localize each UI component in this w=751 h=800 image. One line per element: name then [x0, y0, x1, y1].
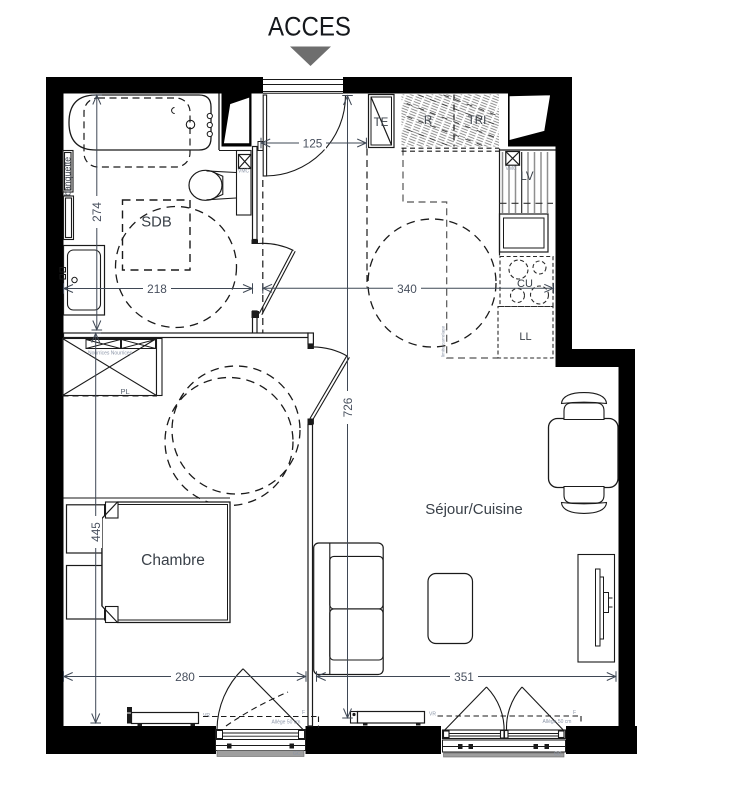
svg-text:LV: LV	[520, 171, 534, 183]
svg-text:125: 125	[303, 137, 323, 151]
svg-text:VMC: VMC	[238, 169, 250, 175]
svg-text:VR: VR	[429, 712, 436, 718]
svg-text:LL: LL	[519, 331, 531, 343]
svg-text:340: 340	[397, 282, 417, 296]
svg-text:TE: TE	[374, 117, 389, 129]
svg-text:SDB: SDB	[141, 215, 172, 231]
svg-text:PL: PL	[121, 387, 130, 396]
svg-text:GC: GC	[554, 752, 562, 758]
svg-text:limite carrelage: limite carrelage	[441, 325, 446, 357]
svg-text:Séjour/Cuisine: Séjour/Cuisine	[425, 501, 523, 518]
svg-text:Chambre: Chambre	[141, 552, 205, 569]
svg-text:banquette: banquette	[63, 157, 73, 196]
svg-text:Allège 50 cm: Allège 50 cm	[272, 720, 301, 726]
svg-text:280: 280	[175, 670, 195, 684]
svg-text:F: F	[573, 710, 576, 716]
svg-text:445: 445	[89, 522, 103, 542]
svg-text:F: F	[302, 710, 305, 716]
svg-text:GC: GC	[293, 751, 301, 757]
svg-text:Allège 50 cm: Allège 50 cm	[543, 719, 572, 725]
svg-text:VMC: VMC	[506, 166, 518, 172]
svg-text:218: 218	[147, 282, 167, 296]
svg-text:726: 726	[341, 397, 355, 417]
svg-text:Nourrices Nourrices: Nourrices Nourrices	[88, 351, 133, 357]
svg-text:351: 351	[454, 670, 474, 684]
svg-text:ACCES: ACCES	[268, 12, 351, 42]
svg-text:274: 274	[90, 202, 104, 222]
svg-text:R: R	[424, 115, 432, 127]
svg-text:TRI: TRI	[468, 115, 487, 127]
